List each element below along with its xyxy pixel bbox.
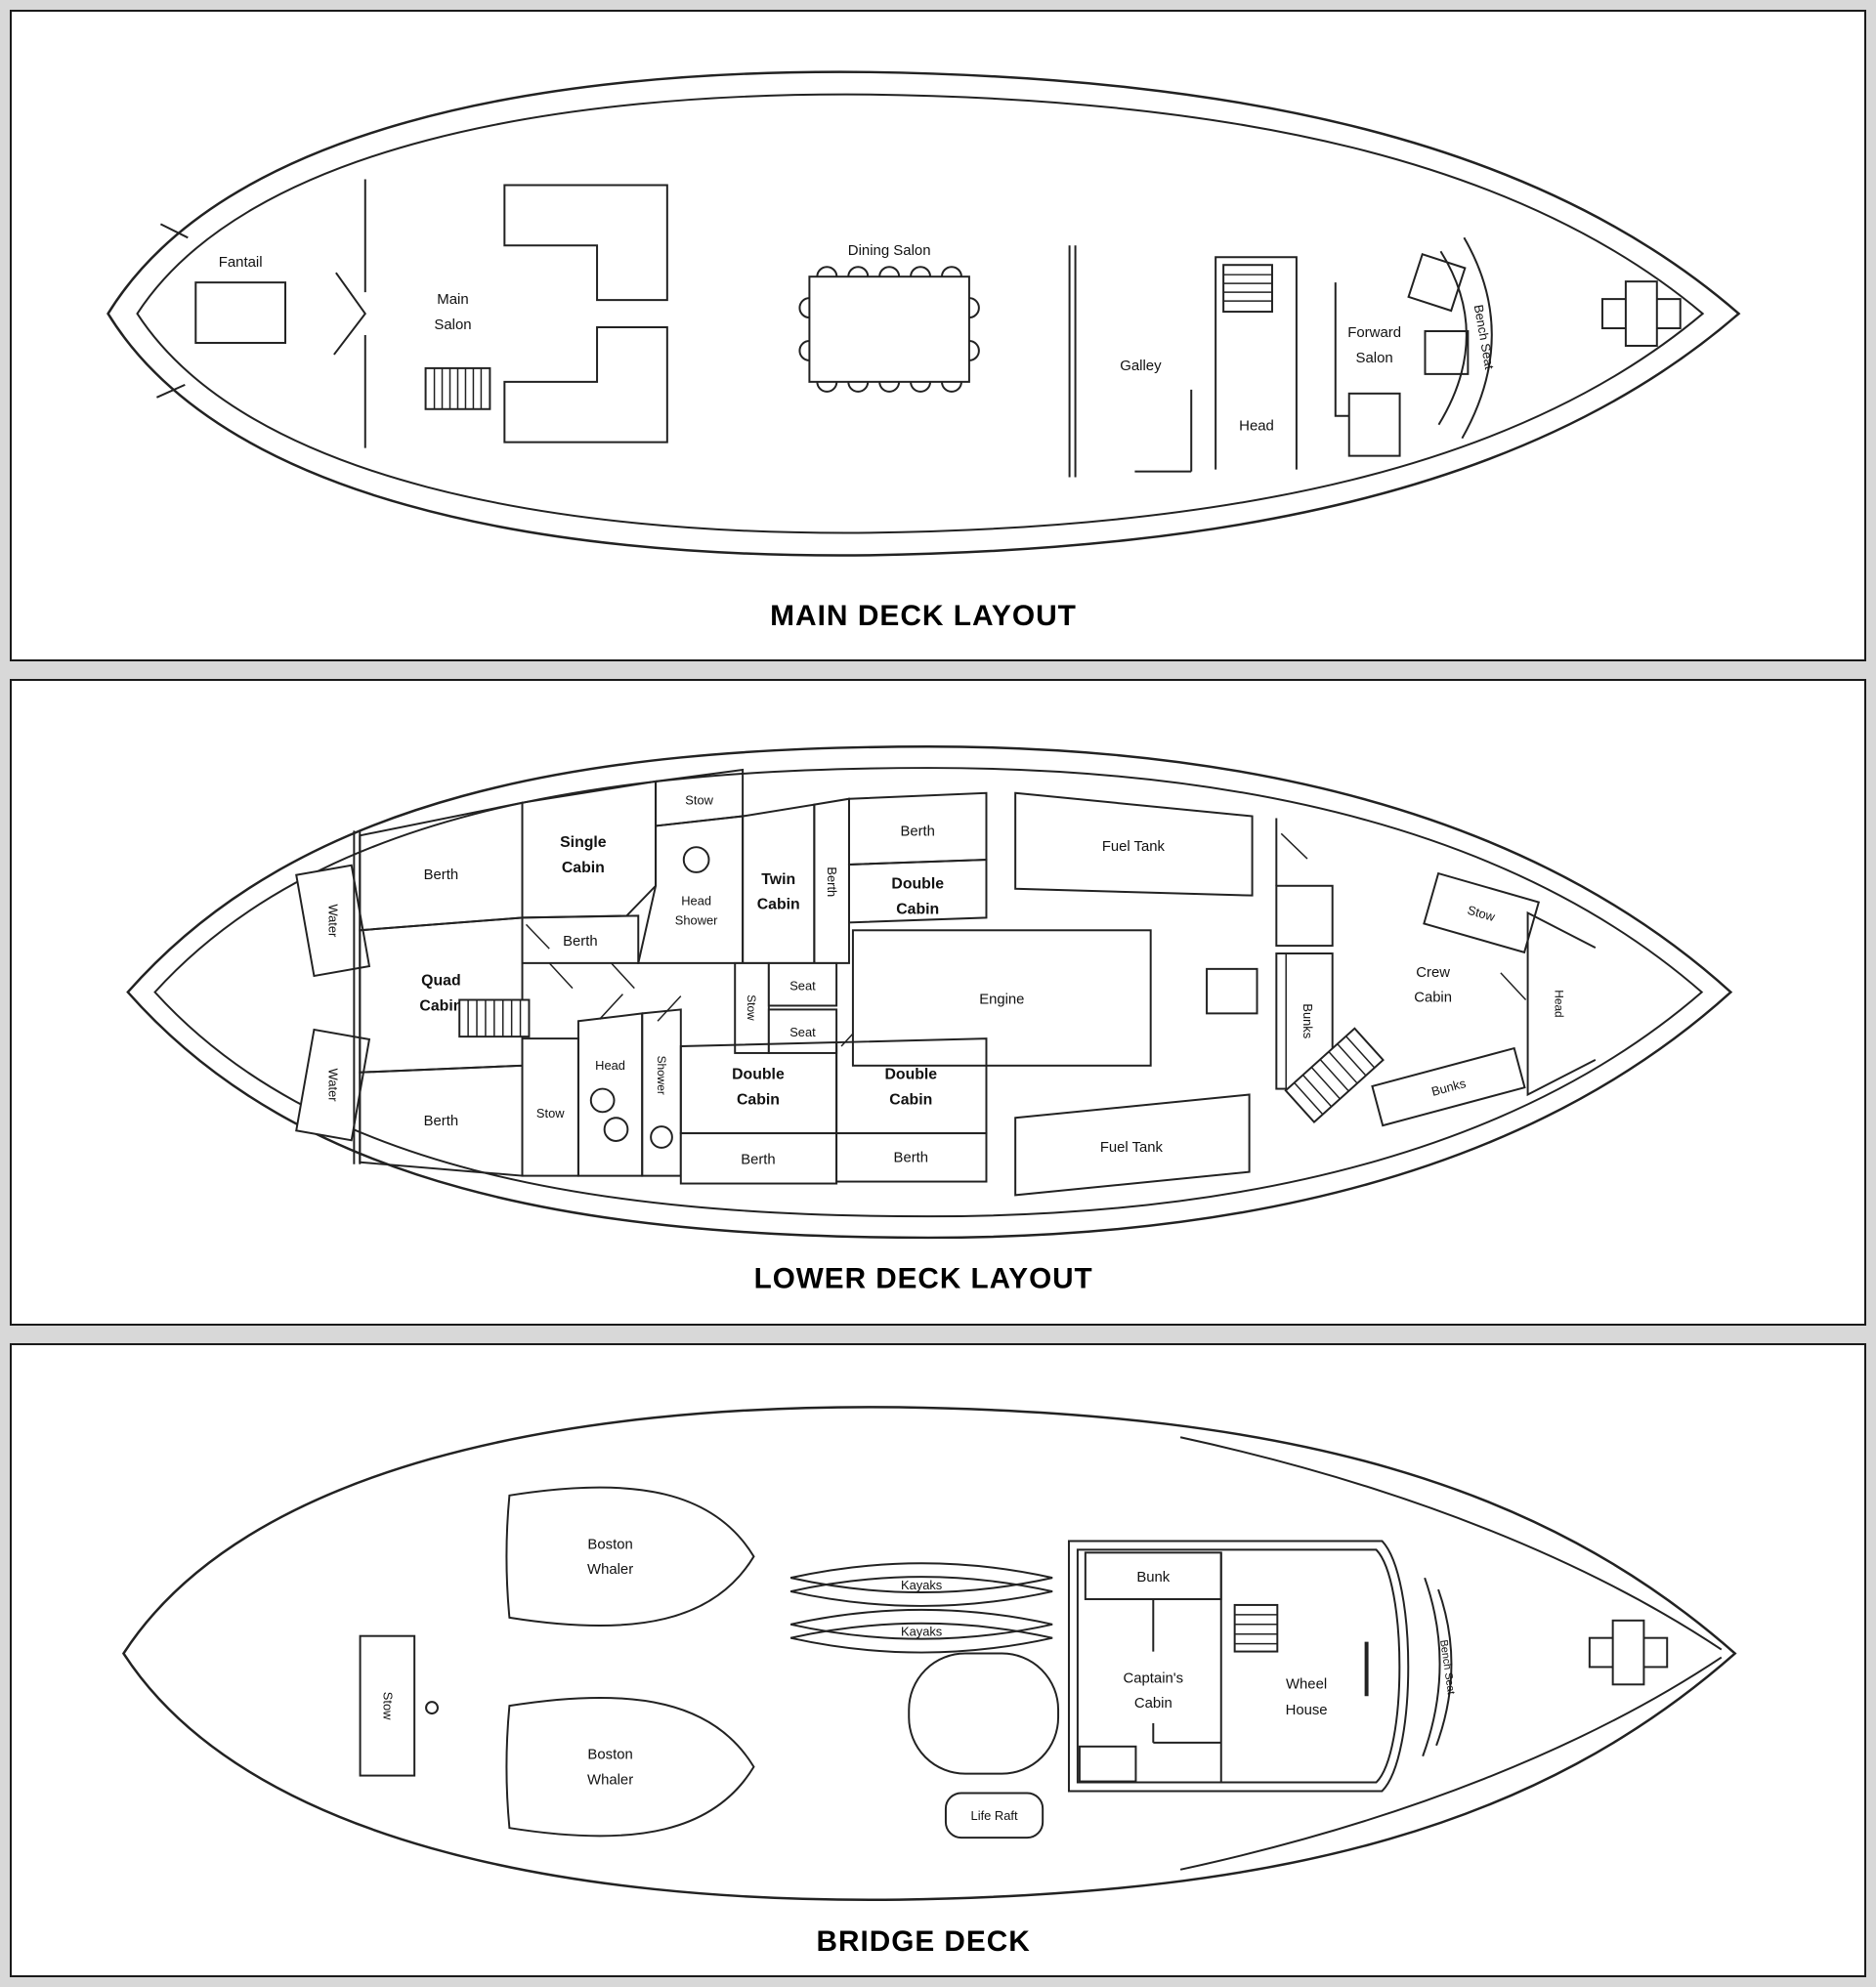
crew-box [1207, 969, 1257, 1014]
stow-label: Stow [745, 994, 758, 1021]
door-swing-line [1501, 973, 1526, 1000]
head-stairs [1223, 265, 1272, 312]
head-shower-label: Head [681, 894, 711, 909]
double-cabin-room [681, 1042, 836, 1133]
main-salon-label: Main [437, 291, 468, 308]
fantail-label: Fantail [219, 254, 263, 271]
lower-deck-panel: Water Water Berth Quad Cabin Berth Singl… [10, 679, 1866, 1326]
head-room [578, 1013, 642, 1175]
wheel-house-label: House [1286, 1703, 1328, 1718]
shower-label: Shower [655, 1056, 668, 1095]
sink-icon [605, 1118, 628, 1141]
berth-label: Berth [825, 867, 839, 897]
quad-cabin-label: Quad [421, 973, 460, 990]
head-label: Head [1239, 418, 1274, 435]
crew-cabin-label: Crew [1416, 965, 1450, 981]
single-cabin-label: Single [560, 834, 607, 851]
lower-deck-plan: Water Water Berth Quad Cabin Berth Singl… [12, 681, 1864, 1324]
stairs-hatch [426, 368, 490, 409]
berth-label: Berth [424, 867, 458, 883]
twin-cabin-label: Cabin [757, 897, 800, 913]
berth-label: Berth [900, 824, 934, 839]
door-chevron [334, 273, 365, 355]
seat-label: Seat [789, 1025, 816, 1039]
bridge-deck-plan: Boston Whaler Boston Whaler Stow Kayaks … [12, 1345, 1864, 1975]
main-salon-label: Salon [434, 317, 471, 333]
forward-salon-label: Salon [1356, 350, 1393, 366]
kayaks-label: Kayaks [901, 1578, 942, 1592]
cabin-locker [1080, 1747, 1136, 1782]
main-deck-panel: Fantail Main Salon Dining Salon Galley H… [10, 10, 1866, 661]
stow-label: Stow [380, 1692, 395, 1720]
crew-box [1276, 886, 1332, 946]
single-cabin-label: Cabin [562, 860, 605, 876]
water-tank-label: Water [326, 904, 341, 938]
forward-salon-seat [1349, 394, 1400, 456]
wheel-house-label: Wheel [1286, 1676, 1327, 1692]
double-cabin-label: Cabin [737, 1091, 780, 1108]
wheelhouse-stairs [1235, 1605, 1278, 1652]
captains-cabin-label: Captain's [1124, 1670, 1184, 1686]
captains-cabin-label: Cabin [1134, 1696, 1172, 1712]
galley-label: Galley [1120, 358, 1162, 374]
toilet-icon [684, 847, 709, 872]
berth-label: Berth [424, 1114, 458, 1129]
deck-box [1425, 331, 1468, 374]
stow-label: Stow [536, 1106, 565, 1120]
galley-bulkhead [1070, 245, 1076, 477]
deck-tub [909, 1654, 1058, 1774]
bridge-deck-panel: Boston Whaler Boston Whaler Stow Kayaks … [10, 1343, 1866, 1977]
fuel-tank-label: Fuel Tank [1100, 1140, 1164, 1156]
head-label: Head [1552, 990, 1565, 1017]
head-label: Head [595, 1058, 625, 1073]
forward-salon-label: Forward [1347, 324, 1401, 341]
dining-table [809, 276, 969, 382]
door-swing-line [1281, 833, 1307, 859]
bench-seat-outer-arc [1423, 1578, 1439, 1756]
bench-seat-label: Bench Seat [1471, 304, 1497, 371]
water-tank-label: Water [326, 1069, 341, 1103]
salon-settee-upper [504, 185, 666, 300]
bridge-deck-title: BRIDGE DECK [817, 1925, 1031, 1958]
crew-cabin-label: Cabin [1414, 991, 1452, 1006]
boston-whaler-label: Boston [587, 1748, 632, 1763]
stairs-hatch [459, 1000, 529, 1037]
stow-label: Stow [685, 793, 713, 808]
seat-label: Seat [789, 979, 816, 993]
lower-deck-title: LOWER DECK LAYOUT [754, 1262, 1093, 1294]
quad-cabin-label: Cabin [419, 997, 462, 1014]
windlass-cross [1602, 281, 1681, 346]
galley-counter [1134, 390, 1191, 472]
dining-salon-label: Dining Salon [848, 242, 931, 259]
boston-whaler-label: Boston [587, 1537, 632, 1552]
boston-whaler-top [506, 1488, 753, 1627]
engine-label: Engine [979, 992, 1024, 1007]
fantail-table [195, 282, 285, 343]
boston-whaler-label: Whaler [587, 1773, 633, 1789]
double-cabin-label: Double [732, 1067, 785, 1083]
double-cabin-label: Double [891, 876, 944, 893]
life-raft-label: Life Raft [971, 1808, 1018, 1823]
main-deck-title: MAIN DECK LAYOUT [770, 600, 1077, 632]
twin-cabin-label: Twin [761, 871, 795, 888]
double-cabin-label: Cabin [889, 1091, 932, 1108]
bunk-label: Bunk [1136, 1570, 1170, 1585]
salon-settee-lower [504, 327, 666, 443]
head-shower-label: Shower [675, 912, 718, 927]
main-deck-plan: Fantail Main Salon Dining Salon Galley H… [12, 12, 1864, 659]
berth-label: Berth [894, 1151, 928, 1166]
fuel-tank-label: Fuel Tank [1102, 839, 1166, 855]
berth-label: Berth [741, 1153, 775, 1168]
head-shower-room [638, 817, 743, 963]
boston-whaler-bottom [506, 1698, 753, 1837]
berth-label: Berth [563, 934, 597, 950]
windlass-cross [1590, 1621, 1667, 1684]
drain-icon [651, 1126, 672, 1148]
boston-whaler-label: Whaler [587, 1562, 633, 1578]
deck-fitting-icon [426, 1702, 438, 1713]
toilet-icon [591, 1089, 615, 1113]
bunks-label: Bunks [1300, 1003, 1315, 1038]
double-cabin-label: Double [884, 1067, 937, 1083]
kayaks-label: Kayaks [901, 1625, 942, 1639]
double-cabin-label: Cabin [896, 901, 939, 917]
quad-cabin-room [360, 917, 522, 1072]
